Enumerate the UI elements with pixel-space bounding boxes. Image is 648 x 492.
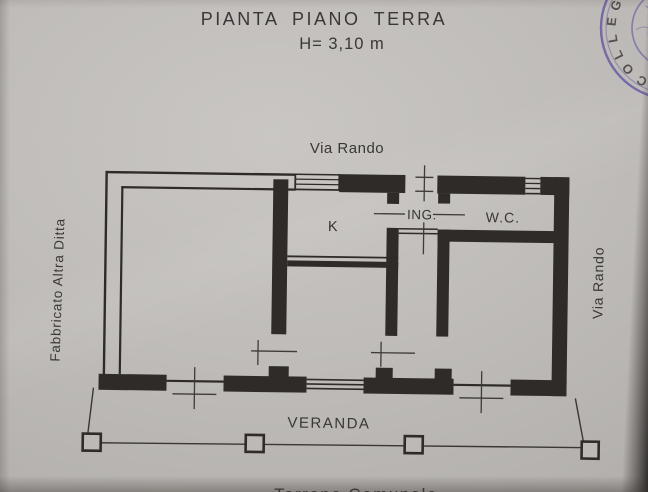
window-top-wc xyxy=(525,178,540,195)
veranda-pillar xyxy=(582,442,599,459)
street-label-top: Via Rando xyxy=(310,140,384,157)
veranda-pillar xyxy=(405,436,423,453)
stamp-letter: E xyxy=(604,16,620,27)
adjacent-building-label-left: Fabbricato Altra Ditta xyxy=(48,218,68,362)
street-label-right: Via Rando xyxy=(589,247,606,320)
room-label-kitchen: K xyxy=(328,219,338,235)
room-label-entrance: ING. xyxy=(407,207,437,222)
building-plan: K ING. W.C. VERANDA xyxy=(83,161,603,459)
scanned-floor-plan-photo: PIANTA PIANO TERRA H= 3,10 m Via Rando F… xyxy=(0,0,648,492)
room-label-wc: W.C. xyxy=(486,209,521,225)
window-top-kitchen xyxy=(294,173,340,191)
room-label-veranda: VERANDA xyxy=(287,414,370,432)
veranda-door-threshold xyxy=(306,379,363,390)
stamp-text: C O L L E G xyxy=(604,0,648,90)
veranda-pillar xyxy=(83,434,101,451)
bottom-street-label-cutoff: Terreno Comunale xyxy=(274,485,438,492)
stamp-letter: O xyxy=(619,60,637,78)
stamp-letter: G xyxy=(607,0,625,13)
stamp-letter: C xyxy=(633,72,648,90)
building-walls xyxy=(98,171,569,397)
door-tick-marks xyxy=(172,162,506,414)
floor-plan-svg: PIANTA PIANO TERRA H= 3,10 m Via Rando F… xyxy=(0,0,648,492)
veranda-pillar xyxy=(246,435,264,452)
page-title: PIANTA PIANO TERRA xyxy=(201,9,447,29)
height-note: H= 3,10 m xyxy=(299,35,385,53)
stamp-letter: L xyxy=(609,48,626,62)
